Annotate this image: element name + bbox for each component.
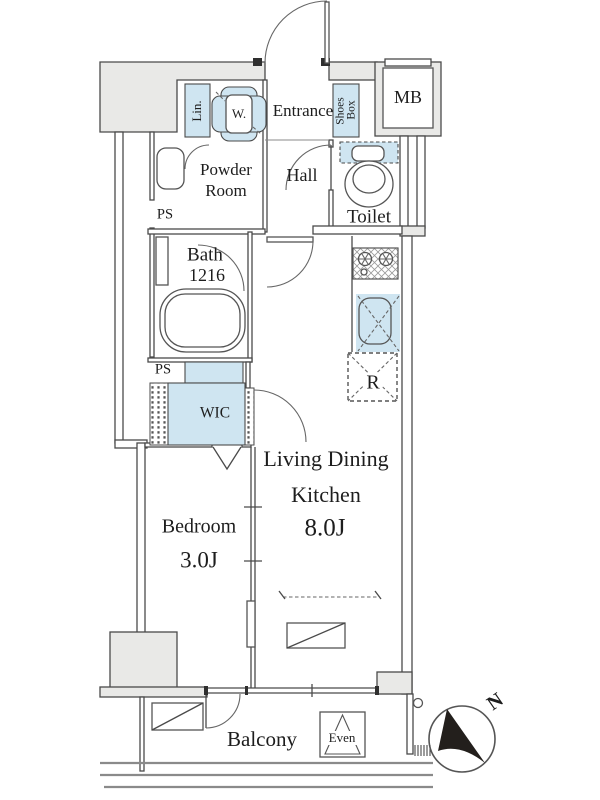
pipe-space-lower-label: PS — [155, 361, 171, 377]
entrance-door-leaf — [325, 2, 329, 63]
wall-segment — [100, 687, 207, 697]
window-jamb — [245, 686, 248, 695]
floor-plan: N MB Entrance Hall Powder Room Toilet Ba… — [0, 0, 600, 800]
toilet-tank-lid — [352, 146, 384, 161]
wic-folding-door — [213, 447, 241, 469]
balcony-label: Balcony — [227, 727, 297, 751]
toilet-label: Toilet — [347, 206, 392, 227]
wic-label: WIC — [200, 405, 230, 422]
bathtub-icon-inner — [165, 294, 240, 347]
north-arrow-icon — [438, 709, 485, 763]
balcony-hatch-marks — [415, 745, 430, 756]
meter-box-label: MB — [394, 87, 422, 107]
hall-ldk-door-swing — [267, 241, 313, 287]
bath-size-label: 1216 — [189, 265, 225, 285]
washroom-door-leaf — [245, 388, 254, 445]
wall-segment — [400, 226, 425, 236]
wall-segment — [329, 62, 377, 80]
powder-room-label2: Room — [205, 181, 247, 200]
wall-segment — [150, 228, 154, 357]
pipe-space-upper-label: PS — [157, 206, 173, 222]
wall-segment — [115, 132, 123, 443]
ldk-marks — [279, 591, 381, 648]
dashed-line-end-tick — [279, 591, 285, 599]
entrance-label: Entrance — [273, 101, 333, 120]
hall-label: Hall — [287, 165, 318, 185]
entrance-door-swing — [265, 1, 327, 63]
washroom-door-swing — [254, 390, 306, 442]
dashed-line-end-tick — [375, 591, 381, 599]
shoes-box-label2: Box — [346, 100, 358, 119]
bath-label: Bath — [187, 244, 223, 265]
wall-segment — [377, 672, 412, 694]
ldk-size-label: 8.0J — [305, 515, 346, 542]
balcony-right-wall — [407, 694, 413, 754]
meter-box-door — [385, 59, 431, 66]
wall-segment — [402, 236, 412, 694]
ldk-label2: Kitchen — [291, 482, 361, 507]
powder-room-label: Powder — [200, 160, 252, 179]
wall-segment — [110, 632, 177, 688]
toilet-seat-icon — [353, 165, 385, 193]
wall-segment — [246, 362, 250, 388]
stove-burner — [361, 269, 367, 275]
wall-segment — [417, 136, 425, 228]
balcony-door-swing — [206, 694, 240, 728]
bedroom-label: Bedroom — [162, 516, 237, 538]
compass: N — [429, 688, 508, 772]
bath-counter — [156, 237, 168, 285]
washbasin-icon — [157, 148, 184, 189]
wall-segment — [248, 232, 252, 362]
wic-upper-shelf — [185, 362, 243, 383]
refrigerator-label: R — [366, 372, 380, 394]
linen-cabinet-label: Lin. — [189, 100, 204, 121]
washer-label: W. — [232, 106, 246, 121]
balcony-divider — [140, 697, 144, 771]
wic-hatch-strip — [150, 383, 168, 445]
windows — [204, 684, 379, 697]
partition-pocket-door — [247, 601, 255, 647]
wall-segment — [150, 132, 154, 200]
bedroom-size-label: 3.0J — [180, 547, 218, 572]
compass-north-label: N — [483, 688, 508, 715]
evacuation-hatch-label: Even — [329, 730, 356, 745]
drain-icon — [414, 699, 423, 708]
window-jamb — [375, 686, 379, 695]
hall-ldk-door-leaf — [267, 237, 313, 242]
floor-plan-drawing: N MB Entrance Hall Powder Room Toilet Ba… — [0, 0, 600, 800]
wall-segment — [400, 136, 408, 228]
window-jamb — [204, 686, 208, 695]
ldk-label: Living Dining — [263, 446, 388, 471]
door-jamb — [253, 58, 262, 66]
